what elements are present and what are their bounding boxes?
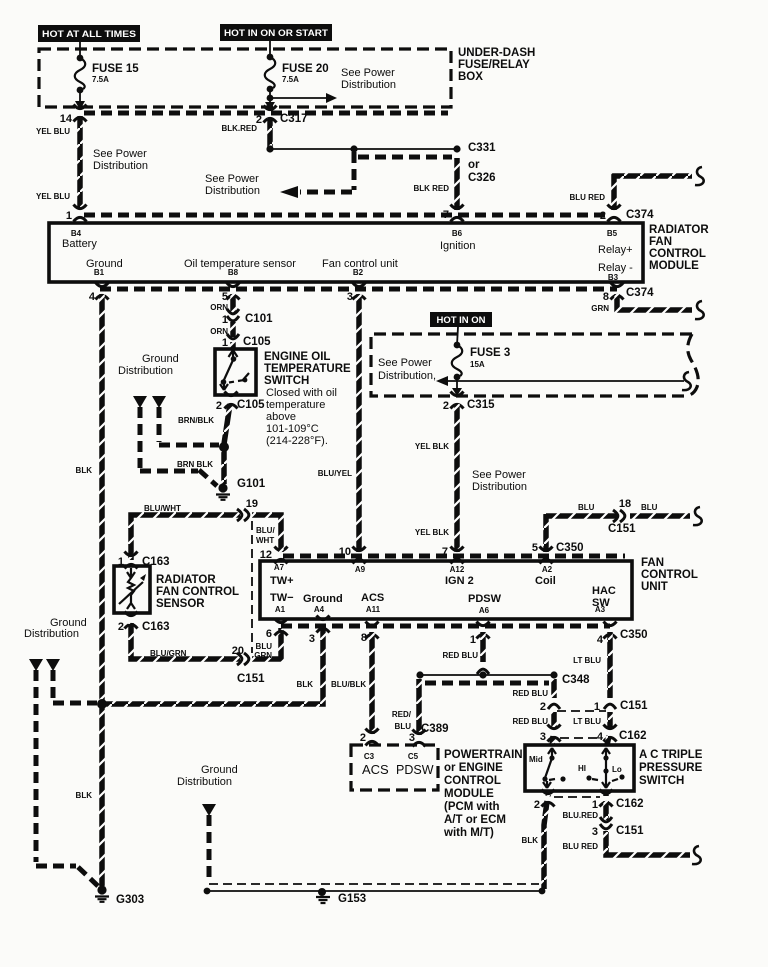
svg-text:20: 20 xyxy=(232,645,244,657)
svg-text:See Power: See Power xyxy=(341,67,395,79)
svg-text:Lo: Lo xyxy=(612,765,622,774)
svg-text:C105: C105 xyxy=(237,399,265,411)
svg-text:FUSE 3: FUSE 3 xyxy=(470,347,510,359)
svg-text:C105: C105 xyxy=(243,336,271,348)
svg-text:Distribution: Distribution xyxy=(118,365,173,377)
svg-text:YEL BLK: YEL BLK xyxy=(415,442,449,451)
svg-text:LT BLU: LT BLU xyxy=(573,717,601,726)
svg-text:B2: B2 xyxy=(353,268,364,277)
svg-text:C5: C5 xyxy=(408,752,419,761)
svg-text:C151: C151 xyxy=(608,523,636,535)
svg-text:C374: C374 xyxy=(626,209,654,221)
svg-text:B4: B4 xyxy=(71,229,82,238)
svg-text:above: above xyxy=(266,411,296,423)
svg-text:C331: C331 xyxy=(468,142,496,154)
svg-text:Ignition: Ignition xyxy=(440,240,475,252)
svg-text:C101: C101 xyxy=(245,313,273,325)
svg-text:ACS: ACS xyxy=(361,592,384,604)
svg-text:PRESSURE: PRESSURE xyxy=(639,762,703,774)
svg-text:IGN 2: IGN 2 xyxy=(445,575,474,587)
svg-text:Oil temperature sensor: Oil temperature sensor xyxy=(184,258,296,270)
svg-text:TW+: TW+ xyxy=(270,575,294,587)
svg-text:SWITCH: SWITCH xyxy=(639,775,684,787)
svg-text:TEMPERATURE: TEMPERATURE xyxy=(264,363,351,375)
svg-text:3: 3 xyxy=(347,291,353,303)
svg-text:1: 1 xyxy=(470,634,476,646)
svg-text:6: 6 xyxy=(266,628,272,640)
svg-text:BLK RED: BLK RED xyxy=(413,184,449,193)
svg-text:7.5A: 7.5A xyxy=(92,75,109,84)
svg-text:BLK.RED: BLK.RED xyxy=(221,124,257,133)
svg-text:BLU RED: BLU RED xyxy=(569,193,605,202)
svg-text:RED BLU: RED BLU xyxy=(512,689,548,698)
svg-text:C163: C163 xyxy=(142,621,170,633)
svg-text:RED BLU: RED BLU xyxy=(442,651,478,660)
svg-text:See Power: See Power xyxy=(472,469,526,481)
svg-text:3: 3 xyxy=(592,826,598,838)
svg-text:BLK: BLK xyxy=(76,791,93,800)
svg-text:C374: C374 xyxy=(626,287,654,299)
svg-text:A6: A6 xyxy=(479,606,490,615)
svg-text:CONTROL: CONTROL xyxy=(641,569,698,581)
svg-text:ORN: ORN xyxy=(210,327,228,336)
svg-text:or: or xyxy=(468,159,480,171)
svg-text:Distribution: Distribution xyxy=(93,160,148,172)
svg-text:PDSW: PDSW xyxy=(468,593,502,605)
svg-text:RADIATOR: RADIATOR xyxy=(156,574,216,586)
svg-text:FUSE 15: FUSE 15 xyxy=(92,63,139,75)
svg-text:A/T or ECM: A/T or ECM xyxy=(444,814,506,826)
svg-text:or ENGINE: or ENGINE xyxy=(444,762,503,774)
svg-text:8: 8 xyxy=(603,291,609,303)
svg-text:FAN CONTROL: FAN CONTROL xyxy=(156,586,239,598)
svg-text:A4: A4 xyxy=(314,605,325,614)
svg-text:RED BLU: RED BLU xyxy=(512,717,548,726)
svg-text:101-109°C: 101-109°C xyxy=(266,423,319,435)
svg-text:B8: B8 xyxy=(228,268,239,277)
svg-text:4: 4 xyxy=(597,731,604,743)
svg-text:HAC: HAC xyxy=(592,585,616,597)
svg-text:SENSOR: SENSOR xyxy=(156,598,205,610)
svg-text:PDSW: PDSW xyxy=(396,763,434,777)
svg-text:2: 2 xyxy=(216,400,222,412)
svg-text:C326: C326 xyxy=(468,172,496,184)
svg-text:ACS: ACS xyxy=(362,762,389,777)
svg-text:1: 1 xyxy=(592,799,598,811)
svg-text:WHT: WHT xyxy=(256,536,274,545)
svg-text:MODULE: MODULE xyxy=(444,788,494,800)
svg-text:GRN: GRN xyxy=(591,304,609,313)
svg-text:C350: C350 xyxy=(620,629,648,641)
svg-text:BLU: BLU xyxy=(256,642,273,651)
svg-text:A1: A1 xyxy=(275,605,286,614)
svg-text:TW−: TW− xyxy=(270,592,294,604)
svg-text:FUSE 20: FUSE 20 xyxy=(282,63,329,75)
svg-text:7.5A: 7.5A xyxy=(282,75,299,84)
svg-text:Distribution: Distribution xyxy=(472,481,527,493)
svg-text:5: 5 xyxy=(532,542,538,554)
svg-text:Closed with oil: Closed with oil xyxy=(266,387,337,399)
svg-text:BLK: BLK xyxy=(297,680,314,689)
svg-text:Mid: Mid xyxy=(529,755,543,764)
svg-text:Distribution: Distribution xyxy=(177,776,232,788)
svg-text:B1: B1 xyxy=(94,268,105,277)
svg-text:YEL BLU: YEL BLU xyxy=(36,192,70,201)
svg-text:SWITCH: SWITCH xyxy=(264,375,309,387)
svg-text:3: 3 xyxy=(540,731,546,743)
svg-text:BLK: BLK xyxy=(522,836,539,845)
svg-text:2: 2 xyxy=(360,732,366,744)
svg-text:19: 19 xyxy=(246,498,258,510)
svg-text:B3: B3 xyxy=(608,273,619,282)
svg-text:Ground: Ground xyxy=(303,593,343,605)
svg-text:LT BLU: LT BLU xyxy=(573,656,601,665)
svg-text:C151: C151 xyxy=(620,700,648,712)
svg-text:G101: G101 xyxy=(237,478,266,490)
svg-text:1: 1 xyxy=(66,210,72,222)
svg-text:B5: B5 xyxy=(607,229,618,238)
svg-text:ENGINE OIL: ENGINE OIL xyxy=(264,351,330,363)
svg-text:14: 14 xyxy=(60,113,73,125)
svg-text:MODULE: MODULE xyxy=(649,260,699,272)
svg-text:HOT IN ON: HOT IN ON xyxy=(436,315,485,326)
svg-text:UNDER-DASH: UNDER-DASH xyxy=(458,47,535,59)
svg-text:A3: A3 xyxy=(595,605,606,614)
svg-text:1: 1 xyxy=(222,314,228,326)
svg-text:BLU RED: BLU RED xyxy=(562,842,598,851)
svg-text:CONTROL: CONTROL xyxy=(444,775,501,787)
svg-text:C389: C389 xyxy=(421,723,449,735)
svg-text:15A: 15A xyxy=(470,360,485,369)
svg-text:C350: C350 xyxy=(556,542,584,554)
svg-text:18: 18 xyxy=(619,498,631,510)
svg-text:5: 5 xyxy=(222,291,228,303)
svg-text:FAN: FAN xyxy=(641,557,664,569)
svg-text:B6: B6 xyxy=(452,229,463,238)
svg-text:Battery: Battery xyxy=(62,238,97,250)
svg-text:HOT AT ALL TIMES: HOT AT ALL TIMES xyxy=(42,29,136,40)
svg-text:2: 2 xyxy=(118,621,124,633)
svg-text:ORN: ORN xyxy=(210,303,228,312)
svg-text:BRN BLK: BRN BLK xyxy=(177,460,213,469)
svg-text:C162: C162 xyxy=(616,798,644,810)
svg-text:with M/T): with M/T) xyxy=(443,827,494,839)
svg-text:C162: C162 xyxy=(619,730,647,742)
svg-text:C317: C317 xyxy=(280,113,308,125)
svg-text:Ground: Ground xyxy=(201,764,238,776)
svg-text:G303: G303 xyxy=(116,894,144,906)
svg-text:Distribution: Distribution xyxy=(205,185,260,197)
svg-text:A12: A12 xyxy=(450,565,465,574)
svg-text:BLU/WHT: BLU/WHT xyxy=(144,504,181,513)
svg-text:C3: C3 xyxy=(364,752,375,761)
svg-text:Distribution: Distribution xyxy=(24,628,79,640)
svg-text:Distribution,: Distribution, xyxy=(378,370,436,382)
svg-text:3: 3 xyxy=(409,732,415,744)
svg-text:UNIT: UNIT xyxy=(641,581,668,593)
svg-text:See Power: See Power xyxy=(93,148,147,160)
svg-text:C151: C151 xyxy=(237,673,265,685)
svg-text:Coil: Coil xyxy=(535,575,556,587)
svg-text:BOX: BOX xyxy=(458,71,483,83)
svg-text:RADIATOR: RADIATOR xyxy=(649,224,709,236)
svg-text:Distribution: Distribution xyxy=(341,79,396,91)
svg-text:A9: A9 xyxy=(355,565,366,574)
svg-text:Ground: Ground xyxy=(86,258,123,270)
svg-text:CONTROL: CONTROL xyxy=(649,248,706,260)
svg-text:GRN: GRN xyxy=(254,651,272,660)
svg-text:BRN/BLK: BRN/BLK xyxy=(178,416,214,425)
svg-text:BLU/: BLU/ xyxy=(256,526,275,535)
svg-text:Relay+: Relay+ xyxy=(598,244,633,256)
svg-text:(214-228°F).: (214-228°F). xyxy=(266,435,328,447)
svg-text:See Power: See Power xyxy=(378,357,432,369)
svg-text:2: 2 xyxy=(534,799,540,811)
svg-text:C151: C151 xyxy=(616,825,644,837)
svg-text:HOT IN ON OR START: HOT IN ON OR START xyxy=(224,28,328,39)
svg-text:(PCM with: (PCM with xyxy=(444,801,500,813)
svg-text:FUSE/RELAY: FUSE/RELAY xyxy=(458,59,530,71)
svg-text:1: 1 xyxy=(118,556,124,568)
svg-text:C163: C163 xyxy=(142,556,170,568)
svg-text:See Power: See Power xyxy=(205,173,259,185)
svg-text:FAN: FAN xyxy=(649,236,672,248)
svg-text:BLU: BLU xyxy=(641,503,658,512)
svg-text:BLU: BLU xyxy=(395,722,412,731)
svg-text:BLU: BLU xyxy=(578,503,595,512)
svg-text:4: 4 xyxy=(89,291,96,303)
svg-text:YEL BLK: YEL BLK xyxy=(415,528,449,537)
svg-text:BLK: BLK xyxy=(76,466,93,475)
svg-text:BLU/YEL: BLU/YEL xyxy=(318,469,352,478)
svg-text:2: 2 xyxy=(540,701,546,713)
svg-text:8: 8 xyxy=(361,632,367,644)
svg-text:A C TRIPLE: A C TRIPLE xyxy=(639,749,703,761)
svg-text:RED/: RED/ xyxy=(392,710,412,719)
svg-text:G153: G153 xyxy=(338,893,366,905)
svg-text:C315: C315 xyxy=(467,399,495,411)
svg-text:A11: A11 xyxy=(366,605,381,614)
svg-text:YEL BLU: YEL BLU xyxy=(36,127,70,136)
svg-text:POWERTRAIN: POWERTRAIN xyxy=(444,749,523,761)
svg-text:A7: A7 xyxy=(274,563,285,572)
svg-text:A2: A2 xyxy=(542,565,553,574)
svg-text:C348: C348 xyxy=(562,674,590,686)
svg-text:Ground: Ground xyxy=(142,353,179,365)
svg-text:2: 2 xyxy=(443,400,449,412)
svg-text:temperature: temperature xyxy=(266,399,325,411)
svg-text:BLU.RED: BLU.RED xyxy=(562,811,598,820)
svg-text:BLU/BLK: BLU/BLK xyxy=(331,680,366,689)
svg-text:3: 3 xyxy=(309,633,315,645)
svg-text:4: 4 xyxy=(597,634,604,646)
svg-text:BLU/GRN: BLU/GRN xyxy=(150,649,187,658)
svg-text:HI: HI xyxy=(578,764,586,773)
